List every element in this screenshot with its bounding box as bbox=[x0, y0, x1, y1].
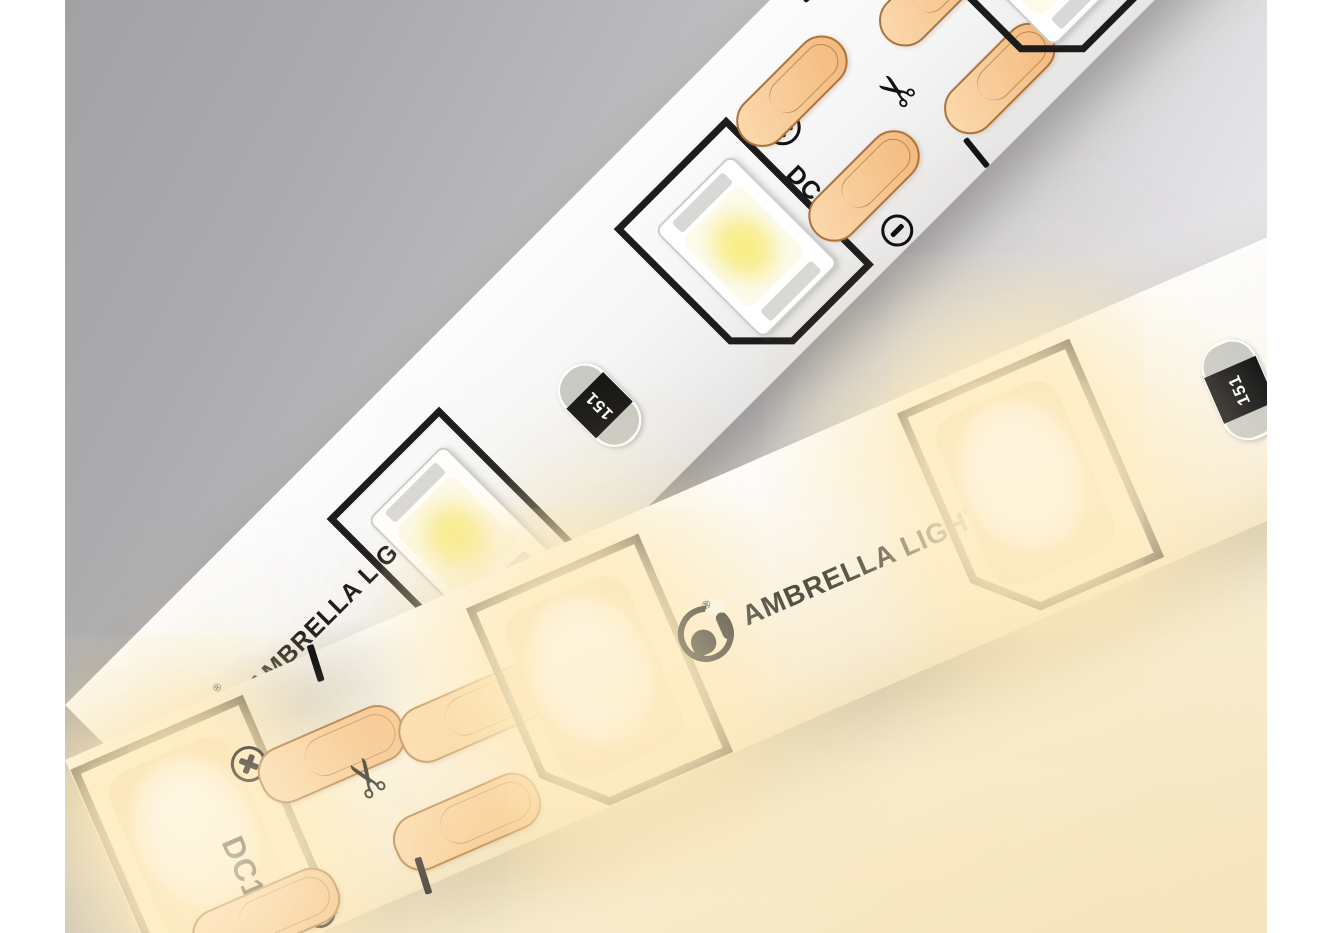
photo-area: ® AMBRELLA LIGHT 151 bbox=[65, 0, 1267, 933]
smd-resistor: 151 bbox=[547, 352, 653, 458]
resistor-code: 151 bbox=[581, 387, 617, 423]
cut-mark bbox=[963, 137, 990, 169]
product-photo: ® AMBRELLA LIGHT 151 bbox=[0, 0, 1333, 933]
scissors-icon: ✂ bbox=[868, 60, 926, 120]
cut-mark bbox=[783, 0, 810, 3]
smd-resistor: 151 bbox=[1193, 331, 1267, 450]
resistor-code: 151 bbox=[1224, 371, 1255, 408]
